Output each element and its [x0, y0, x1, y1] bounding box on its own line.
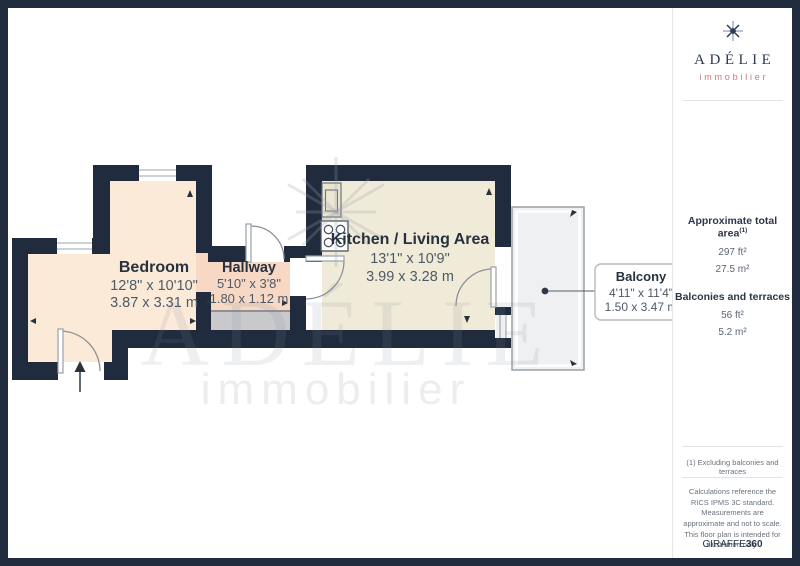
- hallway-name: Hallway: [222, 260, 276, 276]
- window-bedroom-top: [139, 165, 176, 181]
- balconies-imperial: 56 ft²: [673, 310, 792, 321]
- window-bedroom-left: [57, 238, 92, 254]
- sidebar-divider-top: [682, 100, 783, 101]
- footnote-ref: (1): [739, 227, 747, 234]
- sidebar: ADÉLIE immobilier Approximate total area…: [672, 8, 792, 558]
- brand-logo: ADÉLIE immobilier: [673, 20, 792, 82]
- credit-brand: GIRAFFE: [702, 539, 745, 550]
- credit: GIRAFFE360: [673, 539, 792, 550]
- hallway-metric: 1.80 x 1.12 m: [210, 291, 289, 306]
- brand-name: ADÉLIE: [673, 52, 792, 69]
- balcony-imperial: 4'11" x 11'4": [609, 286, 672, 300]
- floor-plan: ADÉLIE immobilier Bedroom 12'8" x 10'10"…: [0, 0, 672, 566]
- kitchen-metric: 3.99 x 3.28 m: [366, 269, 454, 285]
- balcony-leader-dot: [542, 288, 549, 295]
- hallway-imperial: 5'10" x 3'8": [217, 276, 281, 291]
- balconies-label: Balconies and terraces: [673, 291, 792, 303]
- total-area-label: Approximate total area(1): [673, 215, 792, 240]
- area-summary: Approximate total area(1) 297 ft² 27.5 m…: [673, 215, 792, 344]
- footnote-text: (1) Excluding balconies and terraces: [673, 458, 792, 476]
- brand-tagline: immobilier: [673, 72, 792, 82]
- watermark-tagline: immobilier: [201, 365, 471, 414]
- bedroom-name: Bedroom: [119, 259, 189, 276]
- balcony-metric: 1.50 x 3.47 m: [605, 300, 672, 314]
- balcony-name: Balcony: [616, 269, 667, 284]
- sidebar-divider-footnote: [682, 446, 783, 447]
- snowflake-logo-icon: [722, 20, 744, 42]
- credit-suffix: 360: [746, 539, 763, 550]
- kitchen-imperial: 13'1" x 10'9": [370, 251, 450, 267]
- balconies-metric: 5.2 m²: [673, 327, 792, 338]
- bedroom-metric: 3.87 x 3.31 m: [110, 295, 198, 311]
- sidebar-divider-disclaimer: [682, 477, 783, 478]
- total-area-imperial: 297 ft²: [673, 247, 792, 258]
- total-area-metric: 27.5 m²: [673, 264, 792, 275]
- bedroom-label: Bedroom 12'8" x 10'10" 3.87 x 3.31 m: [110, 259, 198, 311]
- kitchen-name: Kitchen / Living Area: [331, 231, 490, 248]
- bedroom-imperial: 12'8" x 10'10": [110, 278, 198, 294]
